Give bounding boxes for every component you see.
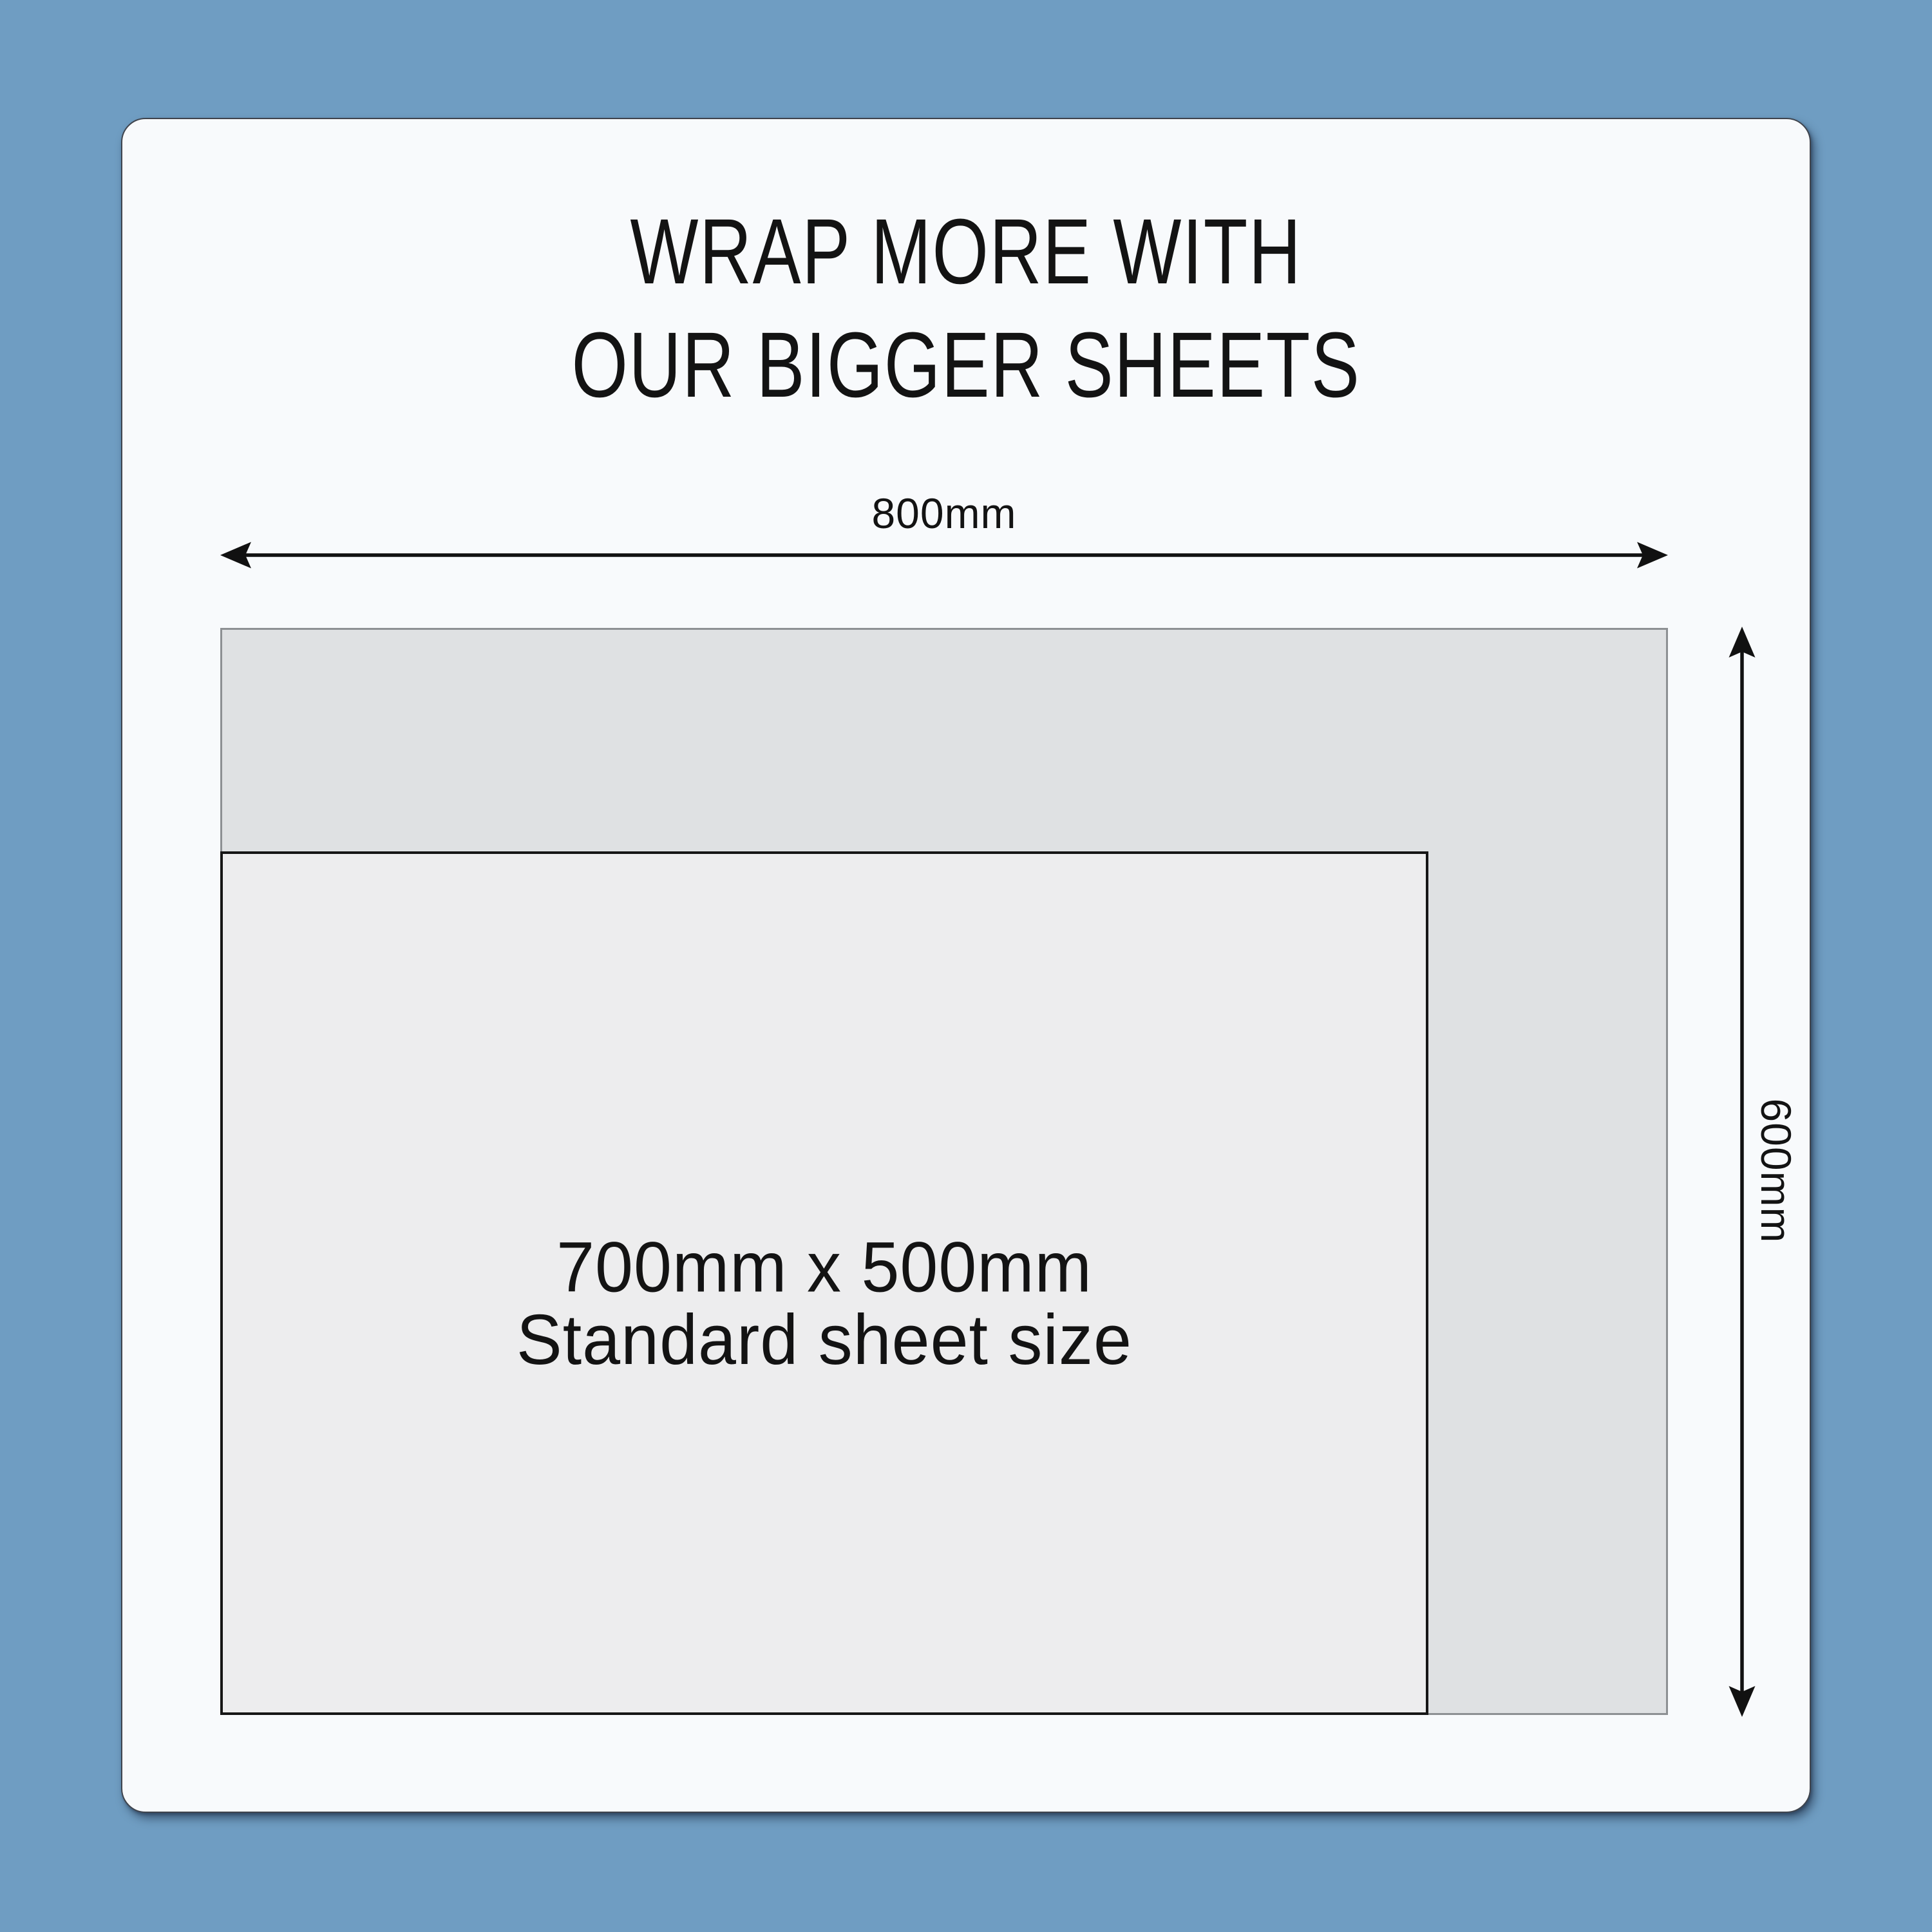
width-dimension-label: 800mm <box>220 491 1668 536</box>
standard-sheet-label-text: Standard sheet size <box>220 1303 1428 1376</box>
page-title: WRAP MORE WITH OUR BIGGER SHEETS <box>213 195 1719 422</box>
height-dimension-label: 600mm <box>1754 978 1799 1364</box>
title-line-1: WRAP MORE WITH <box>213 195 1719 308</box>
standard-sheet-size-text: 700mm x 500mm <box>220 1231 1428 1303</box>
standard-sheet-caption: 700mm x 500mm Standard sheet size <box>220 1231 1428 1376</box>
title-line-2: OUR BIGGER SHEETS <box>213 308 1719 422</box>
page-background: WRAP MORE WITH OUR BIGGER SHEETS 800mm 7… <box>0 0 1932 1932</box>
